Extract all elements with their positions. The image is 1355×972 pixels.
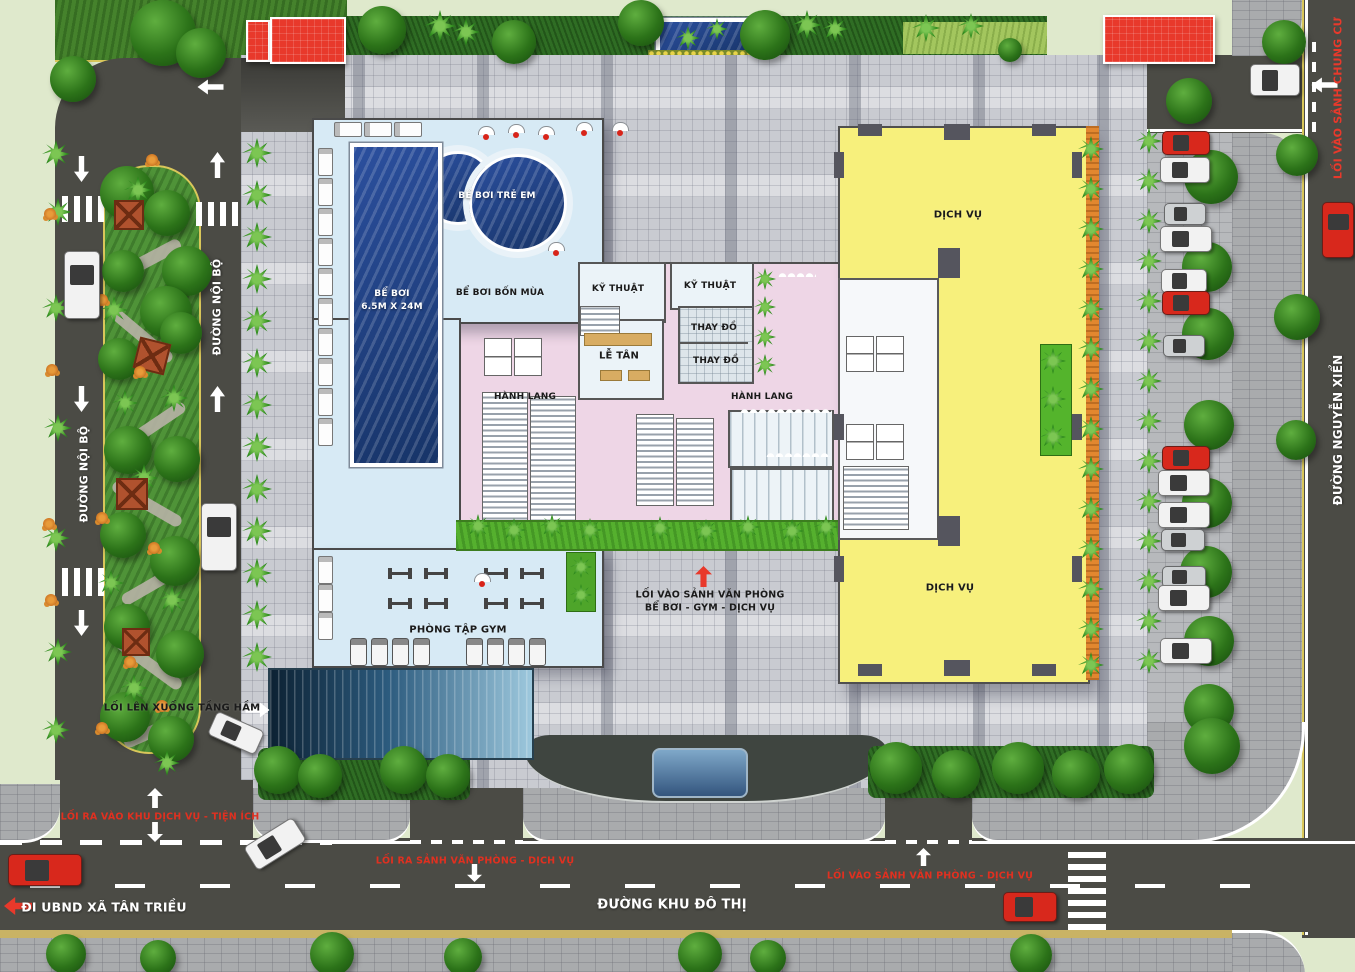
tree-icon bbox=[148, 716, 194, 762]
reception-desk bbox=[584, 333, 652, 346]
tree-icon bbox=[46, 934, 86, 972]
flower-bed bbox=[146, 154, 158, 166]
column bbox=[834, 152, 844, 178]
car bbox=[1158, 502, 1210, 528]
elevator-cell bbox=[846, 424, 874, 460]
lounge-chair-icon bbox=[318, 328, 333, 356]
tree-icon bbox=[1104, 744, 1154, 794]
tree-icon bbox=[426, 754, 470, 798]
label-reception: LỄ TÂN bbox=[599, 351, 639, 362]
elevator-cell bbox=[846, 336, 874, 372]
label-main-pool: BỂ BƠI bbox=[374, 289, 409, 299]
gate-dash-line bbox=[410, 840, 523, 844]
umbrella-icon bbox=[548, 242, 564, 256]
car bbox=[1158, 470, 1210, 496]
label-office-gate: LỐI VÀO SẢNH VĂN PHÒNG - DỊCH VỤ bbox=[827, 871, 1033, 882]
flower-bed bbox=[45, 594, 57, 606]
tree-icon bbox=[310, 932, 354, 972]
tree-icon bbox=[870, 742, 922, 794]
tree-icon bbox=[1262, 20, 1306, 64]
label-corridor-1: HÀNH LANG bbox=[494, 392, 556, 402]
flower-bed bbox=[46, 364, 58, 376]
tree-icon bbox=[740, 10, 790, 60]
tree-icon bbox=[1010, 934, 1052, 972]
label-kids-pool: BỂ BƠI TRẺ EM bbox=[458, 191, 535, 201]
stairwell bbox=[482, 392, 528, 524]
tree-icon bbox=[156, 630, 204, 678]
column bbox=[944, 660, 970, 676]
column bbox=[938, 248, 960, 278]
label-to-ubnd: ĐI UBND XÃ TÂN TRIỀU bbox=[21, 900, 187, 915]
flower-bed bbox=[134, 366, 146, 378]
room-changing bbox=[678, 306, 754, 384]
label-service-1: DỊCH VỤ bbox=[934, 210, 982, 221]
tree-icon bbox=[1052, 750, 1100, 798]
stairwell bbox=[676, 418, 714, 506]
stairwell bbox=[636, 414, 674, 506]
gazebo-icon bbox=[114, 200, 144, 230]
lounge-chair-icon bbox=[318, 178, 333, 206]
tree-icon bbox=[1276, 420, 1316, 460]
flower-bed bbox=[96, 722, 108, 734]
road-edge-line bbox=[332, 841, 410, 844]
car bbox=[8, 854, 82, 886]
lounge-chair-icon bbox=[318, 388, 333, 416]
tree-icon bbox=[444, 938, 482, 972]
column bbox=[858, 124, 882, 136]
label-basement-ramp: LỐI LÊN XUỐNG TẦNG HẦM bbox=[104, 703, 261, 714]
tree-icon bbox=[750, 940, 786, 972]
lounge-chair-icon bbox=[334, 122, 362, 137]
treadmill-icon bbox=[466, 638, 483, 666]
sink-row bbox=[740, 404, 832, 413]
label-internal-road-1: ĐƯỜNG NỘI BỘ bbox=[78, 426, 91, 523]
curb-strip bbox=[0, 930, 1245, 938]
label-service-2: DỊCH VỤ bbox=[926, 583, 974, 594]
water-feature-bottom bbox=[652, 748, 748, 798]
tree-icon bbox=[102, 250, 144, 292]
column bbox=[1072, 152, 1082, 178]
column bbox=[1072, 414, 1082, 440]
lounge-chair-icon bbox=[394, 122, 422, 137]
tree-icon bbox=[492, 20, 536, 64]
lounge-chair-icon bbox=[318, 556, 333, 584]
umbrella-icon bbox=[508, 124, 524, 138]
umbrella-icon bbox=[474, 573, 490, 587]
lounge-chair-icon bbox=[318, 148, 333, 176]
elevator-cell bbox=[876, 424, 904, 460]
tree-icon bbox=[380, 746, 428, 794]
canopy-red-1 bbox=[246, 20, 270, 62]
treadmill-icon bbox=[413, 638, 430, 666]
column bbox=[944, 124, 970, 140]
car bbox=[1162, 291, 1210, 315]
treadmill-icon bbox=[392, 638, 409, 666]
lane-dashes bbox=[30, 884, 1300, 888]
label-changing-2: THAY ĐỒ bbox=[693, 356, 739, 366]
tree-icon bbox=[1184, 718, 1240, 774]
lounge-chair-icon bbox=[318, 584, 333, 612]
car bbox=[201, 503, 237, 571]
lounge-chair-icon bbox=[318, 298, 333, 326]
tree-icon bbox=[358, 6, 406, 54]
umbrella-icon bbox=[538, 126, 554, 140]
tree-icon bbox=[1274, 294, 1320, 340]
sidewalk-corner-sw bbox=[0, 784, 60, 843]
label-internal-road-2: ĐƯỜNG NỘI BỘ bbox=[211, 259, 224, 356]
label-main-pool-size: 6.5M X 24M bbox=[361, 302, 423, 312]
car bbox=[1250, 64, 1300, 96]
tree-icon bbox=[100, 692, 150, 742]
room-toilet-2 bbox=[730, 468, 834, 526]
tree-icon bbox=[992, 742, 1044, 794]
car bbox=[1160, 638, 1212, 664]
car bbox=[1322, 202, 1354, 258]
column bbox=[938, 516, 960, 546]
label-changing-1: THAY ĐỒ bbox=[691, 323, 737, 333]
column bbox=[1032, 124, 1056, 136]
sink-row bbox=[778, 268, 816, 277]
reception-bench bbox=[600, 370, 622, 381]
car bbox=[1161, 529, 1205, 551]
sink-row bbox=[766, 448, 830, 457]
umbrella-icon bbox=[612, 122, 628, 136]
lounge-chair-icon bbox=[318, 358, 333, 386]
tree-icon bbox=[140, 940, 176, 972]
label-urban-road: ĐƯỜNG KHU ĐÔ THỊ bbox=[597, 898, 746, 913]
label-technical-2: KỸ THUẬT bbox=[684, 281, 736, 291]
flower-bed bbox=[44, 208, 56, 220]
tree-icon bbox=[254, 746, 302, 794]
label-office-entry-line2: BỂ BƠI - GYM - DỊCH VỤ bbox=[645, 603, 775, 614]
tree-icon bbox=[1184, 400, 1234, 450]
label-service-gate: LỐI RA VÀO KHU DỊCH VỤ - TIỆN ÍCH bbox=[61, 812, 260, 823]
car bbox=[1161, 269, 1207, 293]
tree-icon bbox=[144, 190, 190, 236]
label-apartment-entry: LỐI VÀO SẢNH CHUNG CƯ bbox=[1332, 17, 1345, 179]
road-dash-line bbox=[1312, 32, 1316, 132]
label-four-season-pool: BỂ BƠI BỐN MÙA bbox=[456, 288, 544, 298]
tree-icon bbox=[678, 932, 722, 972]
lounge-chair-icon bbox=[318, 418, 333, 446]
label-gym: PHÒNG TẬP GYM bbox=[409, 625, 506, 636]
car bbox=[1158, 585, 1210, 611]
tree-icon bbox=[104, 426, 152, 474]
gazebo-icon bbox=[122, 628, 150, 656]
car bbox=[1162, 446, 1210, 470]
lounge-chair-icon bbox=[318, 238, 333, 266]
elevator-cell bbox=[514, 338, 542, 376]
flower-bed bbox=[43, 518, 55, 530]
tree-icon bbox=[618, 0, 664, 46]
label-technical-1: KỸ THUẬT bbox=[592, 284, 644, 294]
lounge-chair-icon bbox=[318, 612, 333, 640]
car bbox=[1160, 157, 1210, 183]
stairwell bbox=[530, 396, 576, 526]
canopy-red-2 bbox=[270, 17, 346, 64]
label-corridor-2: HÀNH LANG bbox=[731, 392, 793, 402]
reception-bench bbox=[628, 370, 650, 381]
treadmill-icon bbox=[487, 638, 504, 666]
treadmill-icon bbox=[371, 638, 388, 666]
road-edge-line bbox=[523, 841, 885, 844]
car bbox=[1160, 226, 1212, 252]
crosswalk bbox=[1068, 846, 1106, 930]
treadmill-icon bbox=[508, 638, 525, 666]
wall-divider bbox=[680, 342, 748, 344]
lounge-chair-icon bbox=[318, 268, 333, 296]
canopy-band-east bbox=[1086, 126, 1099, 680]
gate-dash-line bbox=[885, 840, 972, 844]
gym-equipment-icon bbox=[388, 568, 412, 579]
treadmill-icon bbox=[529, 638, 546, 666]
column bbox=[1072, 556, 1082, 582]
tree-icon bbox=[932, 750, 980, 798]
room-toilet-1 bbox=[728, 410, 834, 468]
gym-equipment-icon bbox=[424, 598, 448, 609]
tree-icon bbox=[1166, 78, 1212, 124]
gazebo-icon bbox=[116, 478, 148, 510]
car bbox=[1162, 131, 1210, 155]
flower-bed bbox=[124, 656, 136, 668]
tree-icon bbox=[176, 28, 226, 78]
umbrella-icon bbox=[478, 126, 494, 140]
lounge-chair-icon bbox=[364, 122, 392, 137]
tree-icon bbox=[154, 436, 200, 482]
car bbox=[1164, 203, 1206, 225]
column bbox=[1032, 664, 1056, 676]
elevator-cell bbox=[876, 336, 904, 372]
lounge-chair-icon bbox=[318, 208, 333, 236]
gym-equipment-icon bbox=[520, 568, 544, 579]
gym-equipment-icon bbox=[388, 598, 412, 609]
label-office-entry-line1: LỐI VÀO SẢNH VĂN PHÒNG bbox=[636, 590, 785, 601]
label-nguyen-xien: ĐƯỜNG NGUYỄN XIỂN bbox=[1331, 355, 1345, 506]
canopy-red-3 bbox=[1103, 15, 1215, 64]
gym-equipment-icon bbox=[520, 598, 544, 609]
stairwell bbox=[580, 306, 620, 336]
column bbox=[834, 556, 844, 582]
tree-icon bbox=[1276, 134, 1318, 176]
tree-icon bbox=[50, 56, 96, 102]
sidewalk-corner-se2 bbox=[1232, 930, 1305, 972]
kids-pool-lobe-big bbox=[469, 154, 567, 252]
flower-bed bbox=[148, 542, 160, 554]
gym-equipment-icon bbox=[484, 598, 508, 609]
crosswalk bbox=[196, 202, 242, 226]
elevator-cell bbox=[484, 338, 512, 376]
car bbox=[1003, 892, 1057, 922]
tree-icon bbox=[298, 754, 342, 798]
sidewalk-bottom bbox=[0, 938, 1245, 972]
gym-equipment-icon bbox=[424, 568, 448, 579]
tree-icon bbox=[998, 38, 1022, 62]
road-edge-line bbox=[972, 841, 1355, 844]
stairwell bbox=[843, 466, 909, 530]
car bbox=[64, 251, 100, 319]
treadmill-icon bbox=[350, 638, 367, 666]
car bbox=[1163, 335, 1205, 357]
label-office-exit: LỐI RA SẢNH VĂN PHÒNG - DỊCH VỤ bbox=[376, 856, 575, 867]
umbrella-icon bbox=[576, 122, 592, 136]
site-plan-canvas: BỂ BƠI TRẺ EM BỂ BƠI 6.5M X 24M BỂ BƠI B… bbox=[0, 0, 1355, 972]
flower-bed bbox=[96, 512, 108, 524]
column bbox=[834, 414, 844, 440]
column bbox=[858, 664, 882, 676]
